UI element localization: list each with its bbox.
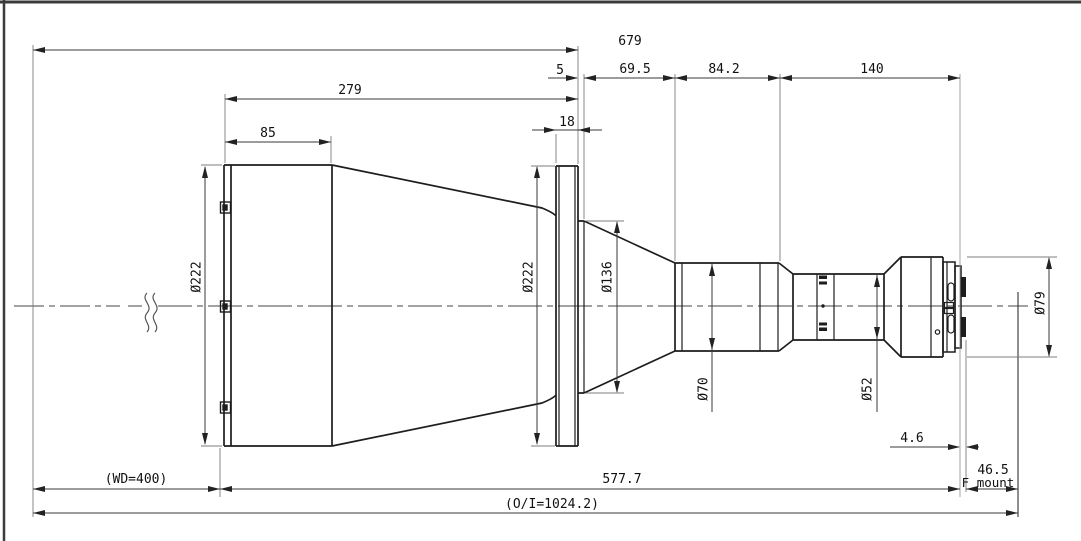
dim-flange-thickness-label: 18: [559, 115, 575, 130]
dim-front-section-label: 85: [260, 126, 276, 141]
dia-rear-barrel-label: Ø52: [861, 377, 876, 400]
front-plate-clips: [221, 202, 231, 413]
dim-rear-section-label: 140: [860, 62, 883, 77]
sheet-frame: [0, 0, 1081, 541]
dim-overall-length: [33, 47, 578, 53]
mount-type-label: F mount: [962, 475, 1015, 490]
dia-mid-barrel-label: Ø70: [697, 377, 712, 400]
dim-mechanical-length-label: 577.7: [602, 472, 641, 487]
barrel-scale-marks: [819, 276, 827, 332]
extension-lines: [33, 45, 1057, 517]
dim-flange-step-label: 5: [556, 63, 564, 78]
break-symbol: [145, 293, 157, 332]
dia-flange-label: Ø222: [522, 261, 537, 292]
dim-dia-relay-cone: [614, 221, 620, 393]
dim-mechanical-length: [220, 486, 960, 492]
dim-front-section: [225, 139, 331, 145]
dim-object-image-label: (O/I=1024.2): [505, 497, 599, 512]
dim-flange-offset-label: 4.6: [900, 431, 923, 446]
lens-technical-drawing: 679 279 85 5 18 69.5 84.2 140 Ø222 Ø222 …: [0, 0, 1081, 541]
dim-overall-length-label: 679: [618, 34, 641, 49]
dia-relay-cone-label: Ø136: [601, 261, 616, 292]
dim-to-flange: [225, 96, 578, 102]
dim-cone-section-label: 84.2: [708, 62, 739, 77]
dim-relay-section-label: 69.5: [619, 62, 650, 77]
lens-outline: [221, 165, 1019, 517]
dia-front-cell-label: Ø222: [190, 261, 205, 292]
dim-working-distance-label: (WD=400): [105, 472, 168, 487]
dia-mount-ring-label: Ø79: [1034, 291, 1049, 314]
dim-to-flange-label: 279: [338, 83, 361, 98]
